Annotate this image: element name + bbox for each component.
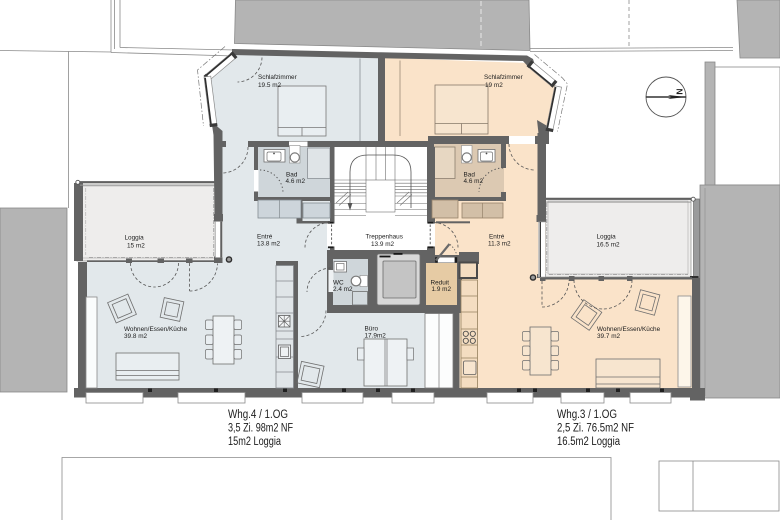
svg-text:N: N xyxy=(675,88,685,94)
svg-text:1.9 m2: 1.9 m2 xyxy=(432,286,452,293)
svg-text:Wohnen/Essen/Küche: Wohnen/Essen/Küche xyxy=(597,326,661,333)
svg-text:Whg.4 / 1.OG: Whg.4 / 1.OG xyxy=(228,409,288,421)
svg-text:Schlafzimmer: Schlafzimmer xyxy=(484,74,524,81)
svg-text:16.5 m2: 16.5 m2 xyxy=(597,242,621,249)
svg-text:13.8 m2: 13.8 m2 xyxy=(257,241,281,248)
svg-text:4.6 m2: 4.6 m2 xyxy=(464,178,484,185)
svg-text:4.6 m2: 4.6 m2 xyxy=(286,178,306,185)
svg-text:13.9 m2: 13.9 m2 xyxy=(371,241,395,248)
svg-text:Loggia: Loggia xyxy=(125,235,145,242)
svg-text:19.5 m2: 19.5 m2 xyxy=(258,82,282,89)
svg-text:3,5 Zi. 98m2 NF: 3,5 Zi. 98m2 NF xyxy=(228,423,293,435)
svg-text:Loggia: Loggia xyxy=(597,234,617,241)
svg-text:Wohnen/Essen/Küche: Wohnen/Essen/Küche xyxy=(124,326,188,333)
svg-text:Treppenhaus: Treppenhaus xyxy=(366,234,403,241)
svg-text:2.4 m2: 2.4 m2 xyxy=(333,286,353,293)
svg-text:17.9m2: 17.9m2 xyxy=(365,333,387,340)
svg-text:15 m2: 15 m2 xyxy=(127,243,145,250)
svg-text:Whg.3 / 1.OG: Whg.3 / 1.OG xyxy=(557,409,617,421)
svg-text:19 m2: 19 m2 xyxy=(485,82,503,89)
svg-text:15m2 Loggia: 15m2 Loggia xyxy=(228,436,281,448)
svg-text:39.7 m2: 39.7 m2 xyxy=(597,333,621,340)
svg-text:Entré: Entré xyxy=(257,234,273,241)
svg-text:39.8 m2: 39.8 m2 xyxy=(124,333,148,340)
svg-text:2,5 Zi. 76.5m2 NF: 2,5 Zi. 76.5m2 NF xyxy=(557,423,634,435)
svg-text:16.5m2 Loggia: 16.5m2 Loggia xyxy=(557,436,620,448)
svg-text:Schlafzimmer: Schlafzimmer xyxy=(258,74,298,81)
svg-text:Entré: Entré xyxy=(489,234,505,241)
svg-text:Büro: Büro xyxy=(365,326,379,333)
svg-text:11.3 m2: 11.3 m2 xyxy=(488,241,511,248)
